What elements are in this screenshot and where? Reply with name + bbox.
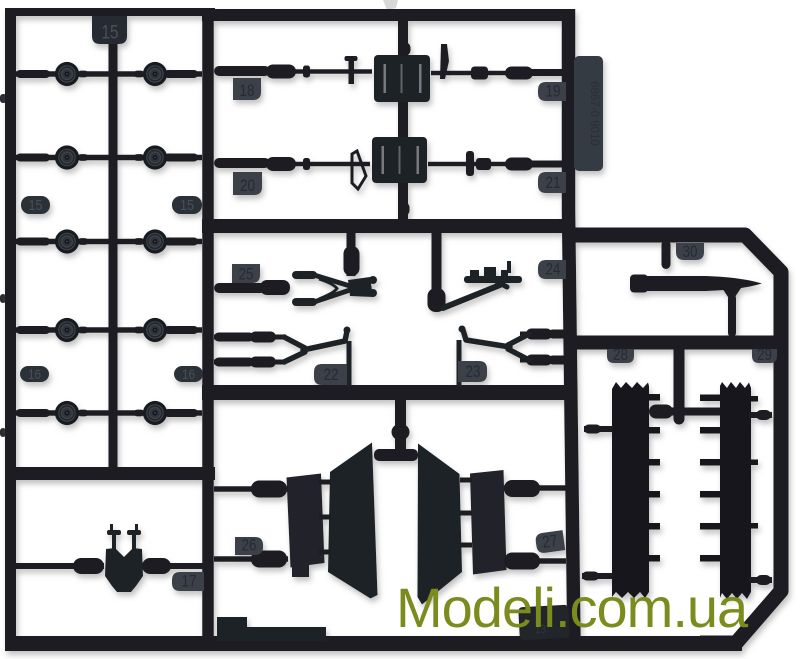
svg-text:25: 25 bbox=[239, 265, 254, 284]
svg-text:18: 18 bbox=[240, 81, 255, 100]
svg-text:29: 29 bbox=[757, 345, 772, 364]
svg-text:15: 15 bbox=[180, 198, 194, 214]
svg-text:22: 22 bbox=[324, 365, 339, 384]
svg-text:20: 20 bbox=[240, 176, 255, 195]
svg-text:16: 16 bbox=[28, 366, 41, 382]
svg-text:6867-0 9010: 6867-0 9010 bbox=[588, 81, 600, 146]
svg-text:15: 15 bbox=[102, 23, 119, 44]
svg-text:26: 26 bbox=[242, 536, 257, 555]
svg-text:19: 19 bbox=[546, 82, 561, 101]
svg-text:30: 30 bbox=[683, 242, 698, 261]
svg-text:21: 21 bbox=[546, 173, 561, 192]
svg-text:15: 15 bbox=[29, 198, 43, 214]
svg-text:16: 16 bbox=[182, 366, 195, 382]
svg-text:23: 23 bbox=[466, 362, 481, 381]
svg-text:27: 27 bbox=[541, 531, 558, 552]
svg-text:24: 24 bbox=[546, 260, 561, 279]
svg-text:Modeli.com.ua: Modeli.com.ua bbox=[396, 576, 749, 639]
svg-text:17: 17 bbox=[182, 572, 197, 591]
svg-text:28: 28 bbox=[613, 345, 628, 364]
